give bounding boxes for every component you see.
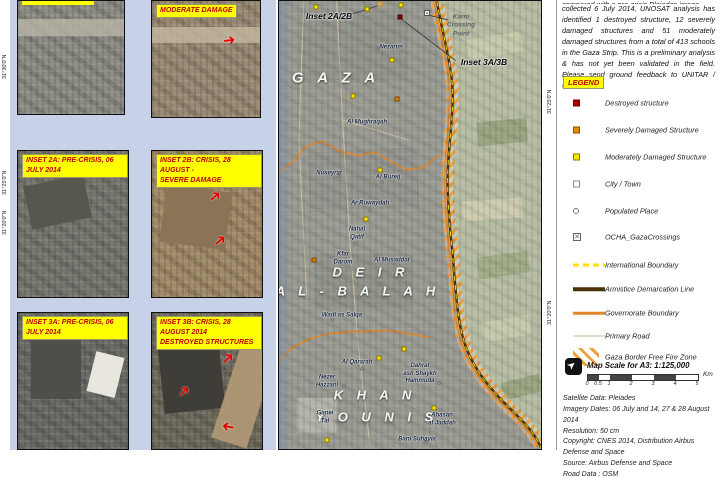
legend-item-label: Primary Road bbox=[605, 332, 650, 341]
line-intl-legend-icon bbox=[573, 264, 605, 267]
inset-2b-label: INSET 2B: CRISIS, 28 AUGUST - SEVERE DAM… bbox=[156, 154, 262, 188]
place-label: Nahal Qatif bbox=[349, 227, 365, 242]
moderate-marker bbox=[364, 217, 369, 222]
credit-line: Source: Airbus Defense and Space bbox=[563, 459, 717, 470]
place-label: Ganei Tal bbox=[317, 411, 334, 426]
place-label: Nezer Hazzani bbox=[316, 375, 338, 390]
moderate-marker bbox=[390, 58, 395, 63]
populated-marker bbox=[331, 319, 334, 322]
credits-block: Satellite Data: PleiadesImagery Dates: 0… bbox=[563, 394, 717, 481]
moderate-marker bbox=[432, 406, 437, 411]
scale-bar-segment bbox=[599, 375, 610, 380]
inset-3b-label: INSET 3B: CRISIS, 28 AUGUST 2014 DESTROY… bbox=[156, 316, 262, 350]
scale-bar-segment bbox=[588, 375, 599, 380]
place-label: Abasan al Jaddah bbox=[428, 413, 456, 428]
inset-3a-label: INSET 3A: PRE-CRISIS, 06 JULY 2014 bbox=[22, 316, 128, 340]
sq-red-legend-icon bbox=[573, 100, 580, 107]
scale-bar-segment bbox=[654, 375, 676, 380]
inset-1a-pre-crisis bbox=[17, 0, 125, 115]
latitude-label: 31°25'0"N bbox=[547, 86, 553, 114]
legend-item-label: Populated Place bbox=[605, 207, 658, 216]
karni-crossing-label: Karni Crossing Point bbox=[447, 13, 475, 38]
legend-item-label: OCHA_GazaCrossings bbox=[605, 233, 680, 242]
north-arrow-icon: ➤ bbox=[565, 358, 582, 375]
scale-tick: 5 bbox=[695, 381, 698, 387]
populated-marker bbox=[425, 441, 428, 444]
satellite-image-1b bbox=[152, 1, 260, 117]
place-label: Al Qararah bbox=[342, 359, 373, 367]
populated-marker bbox=[375, 255, 378, 258]
populated-marker bbox=[438, 382, 441, 385]
place-label: Al Bureij bbox=[376, 174, 401, 182]
scale-tick: 1 bbox=[607, 381, 610, 387]
circle-legend-icon bbox=[573, 208, 579, 214]
sq-white-legend-icon bbox=[573, 181, 580, 188]
inset-callout-label: Inset 2A/2B bbox=[306, 11, 352, 21]
legend-item: Destroyed structure bbox=[563, 96, 715, 110]
legend-item-label: International Boundary bbox=[605, 261, 678, 270]
inset-3b-destroyed-structures: INSET 3B: CRISIS, 28 AUGUST 2014 DESTROY… bbox=[151, 312, 263, 450]
legend-item: ✕OCHA_GazaCrossings bbox=[563, 230, 715, 244]
place-label: Dahrat ash Shaykh Hammuda bbox=[403, 363, 436, 386]
legend-item-label: Governorate Boundary bbox=[605, 309, 679, 318]
main-map: G A Z AD E I RA L - B A L A HK H A NY O … bbox=[278, 0, 542, 450]
place-label: Al Mughraqah bbox=[347, 119, 387, 127]
line-armistice-legend-icon bbox=[573, 287, 605, 291]
sq-yellow-legend-icon bbox=[573, 154, 580, 161]
scale-tick-labels: 00.512345 bbox=[587, 381, 707, 389]
place-label: Bani Suhayla bbox=[398, 436, 436, 444]
moderate-marker bbox=[399, 3, 404, 8]
scale-tick: 0 bbox=[585, 381, 588, 387]
map-scale-title: Map Scale for A3: 1:125,000 bbox=[587, 361, 689, 370]
legend-item: Severely Damaged Structure bbox=[563, 123, 715, 137]
damage-arrow-icon: ➜ bbox=[222, 33, 237, 50]
severe-marker bbox=[312, 258, 317, 263]
legend-title: LEGEND bbox=[563, 76, 604, 89]
legend-item: Populated Place bbox=[563, 204, 715, 218]
moderate-marker bbox=[314, 5, 319, 10]
legend-item: Primary Road bbox=[563, 329, 715, 343]
populated-marker bbox=[377, 47, 380, 50]
legend-item-label: Moderately Damaged Structure bbox=[605, 153, 706, 162]
populated-marker bbox=[378, 284, 381, 287]
moderate-marker bbox=[402, 347, 407, 352]
destroyed-marker bbox=[398, 15, 403, 20]
scale-tick: 4 bbox=[673, 381, 676, 387]
moderate-marker bbox=[325, 438, 330, 443]
inset-3a-pre-crisis: INSET 3A: PRE-CRISIS, 06 JULY 2014 bbox=[17, 312, 129, 450]
latitude-label: 31°20'0"N bbox=[547, 297, 553, 325]
moderate-marker bbox=[378, 168, 383, 173]
populated-marker bbox=[381, 181, 384, 184]
legend-item: Governorate Boundary bbox=[563, 306, 715, 320]
place-label: Al Musaddar bbox=[374, 257, 410, 265]
scale-tick: 3 bbox=[651, 381, 654, 387]
legend-item: International Boundary bbox=[563, 258, 715, 272]
legend-panel: compared with a pre-crisis Pleiades imag… bbox=[556, 0, 720, 450]
region-label: K H A N bbox=[334, 388, 416, 403]
inset-1a-label-clipped bbox=[22, 1, 94, 5]
populated-marker bbox=[338, 175, 341, 178]
scale-bar-segment bbox=[676, 375, 698, 380]
scale-unit-label: Km bbox=[703, 371, 713, 378]
populated-marker bbox=[354, 243, 357, 246]
satellite-image-1a bbox=[18, 1, 124, 114]
line-gov-legend-icon bbox=[573, 312, 605, 315]
place-label: Kfar Darom bbox=[333, 252, 352, 267]
legend-item: Moderately Damaged Structure bbox=[563, 150, 715, 164]
inset-callout-label: Inset 3A/3B bbox=[461, 57, 507, 67]
legend-item-label: Armistice Demarcation Line bbox=[605, 285, 694, 294]
place-label: Nezarim bbox=[379, 44, 402, 52]
inset-1b-moderate-damage: MODERATE DAMAGE➜ bbox=[151, 0, 261, 118]
credit-line: Copyright: CNES 2014, Distribution Airbu… bbox=[563, 437, 717, 459]
scale-bar-segment bbox=[632, 375, 654, 380]
region-label: G A Z A bbox=[292, 70, 380, 87]
latitude-label: 31°25'0"N bbox=[2, 167, 8, 195]
populated-marker bbox=[343, 385, 346, 388]
sq-orange-legend-icon bbox=[573, 127, 580, 134]
latitude-label: 31°30'0"N bbox=[2, 51, 8, 79]
credit-line: Road Data : OSM bbox=[563, 470, 717, 481]
credit-line: Resolution: 50 cm bbox=[563, 427, 717, 438]
severe-marker bbox=[395, 97, 400, 102]
place-label: Wadi as Salqa bbox=[322, 312, 362, 320]
unosat-gaza-damage-map-sheet: { "intro": { "clipped_line": "compared w… bbox=[0, 0, 720, 450]
inset-2a-pre-crisis: INSET 2A: PRE-CRISIS, 06 JULY 2014 bbox=[17, 150, 129, 298]
region-label: Y O U N I S bbox=[316, 410, 439, 425]
scale-bar-segment bbox=[610, 375, 632, 380]
latitude-label: 31°20'0"N bbox=[2, 207, 8, 235]
populated-marker bbox=[336, 420, 339, 423]
moderate-marker bbox=[377, 356, 382, 361]
legend-item-label: Destroyed structure bbox=[605, 99, 669, 108]
inset-2a-label: INSET 2A: PRE-CRISIS, 06 JULY 2014 bbox=[22, 154, 128, 178]
moderate-marker bbox=[351, 94, 356, 99]
inset-panel: MODERATE DAMAGE➜ INSET 2A: PRE-CRISIS, 0… bbox=[10, 0, 276, 450]
legend-item: Armistice Demarcation Line bbox=[563, 282, 715, 296]
inset-1b-label: MODERATE DAMAGE bbox=[156, 4, 237, 18]
scale-bar bbox=[587, 374, 699, 381]
legend-item-label: Severely Damaged Structure bbox=[605, 126, 699, 135]
city-marker bbox=[378, 2, 383, 7]
legend-item: City / Town bbox=[563, 177, 715, 191]
crossing-marker: ✕ bbox=[424, 10, 430, 16]
line-road-legend-icon bbox=[573, 336, 605, 337]
moderate-marker bbox=[365, 7, 370, 12]
populated-marker bbox=[361, 368, 364, 371]
place-label: Ar Ruwaydah bbox=[351, 200, 389, 208]
credit-line: Imagery Dates: 06 July and 14, 27 & 28 A… bbox=[563, 405, 717, 427]
credit-line: Satellite Data: Pleiades bbox=[563, 394, 717, 405]
legend-item-label: City / Town bbox=[605, 180, 641, 189]
inset-2b-severe-damage: INSET 2B: CRISIS, 28 AUGUST - SEVERE DAM… bbox=[151, 150, 263, 298]
scale-tick: 2 bbox=[629, 381, 632, 387]
region-label: A L - B A L A H bbox=[278, 284, 440, 299]
populated-marker bbox=[369, 210, 372, 213]
crossing-legend-icon: ✕ bbox=[573, 233, 581, 241]
scale-tick: 0.5 bbox=[594, 381, 602, 387]
region-label: D E I R bbox=[333, 265, 410, 280]
